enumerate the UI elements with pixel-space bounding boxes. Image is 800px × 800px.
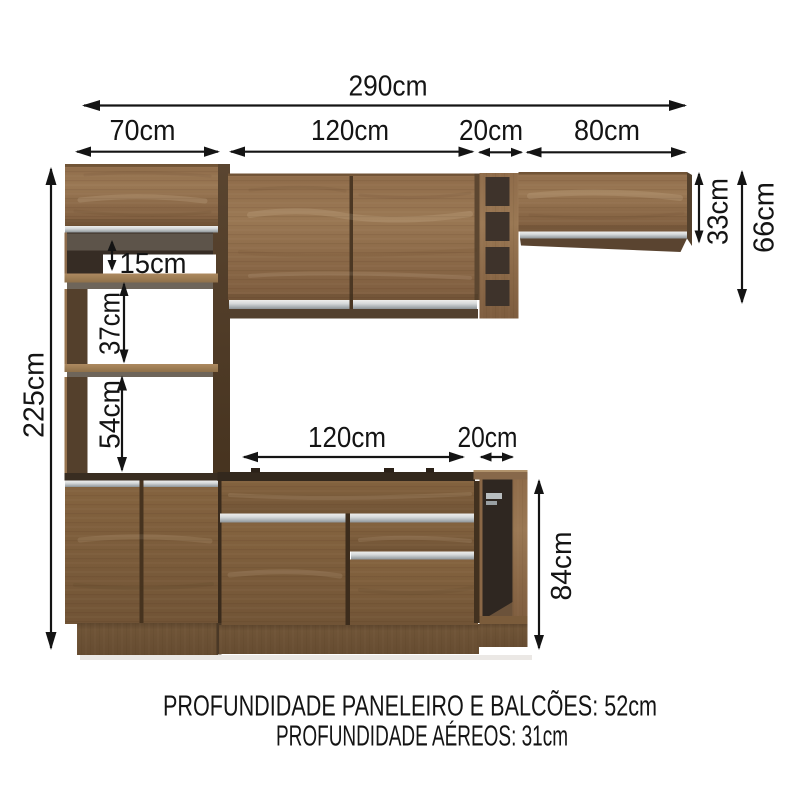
- svg-text:290cm: 290cm: [349, 71, 428, 103]
- svg-text:33cm: 33cm: [703, 178, 735, 245]
- svg-text:15cm: 15cm: [120, 248, 187, 280]
- svg-text:70cm: 70cm: [110, 115, 176, 147]
- svg-text:66cm: 66cm: [749, 182, 781, 253]
- svg-text:120cm: 120cm: [311, 115, 389, 147]
- svg-text:84cm: 84cm: [546, 532, 578, 601]
- svg-text:20cm: 20cm: [459, 115, 523, 147]
- svg-text:20cm: 20cm: [458, 422, 518, 454]
- svg-text:120cm: 120cm: [308, 422, 386, 454]
- svg-text:37cm: 37cm: [95, 292, 127, 355]
- svg-text:PROFUNDIDADE AÉREOS: 31cm: PROFUNDIDADE AÉREOS: 31cm: [276, 720, 568, 753]
- svg-text:54cm: 54cm: [95, 380, 127, 449]
- svg-text:80cm: 80cm: [574, 115, 640, 147]
- svg-text:225cm: 225cm: [19, 352, 51, 438]
- svg-text:PROFUNDIDADE PANELEIRO E BALCÕ: PROFUNDIDADE PANELEIRO E BALCÕES: 52cm: [163, 689, 657, 723]
